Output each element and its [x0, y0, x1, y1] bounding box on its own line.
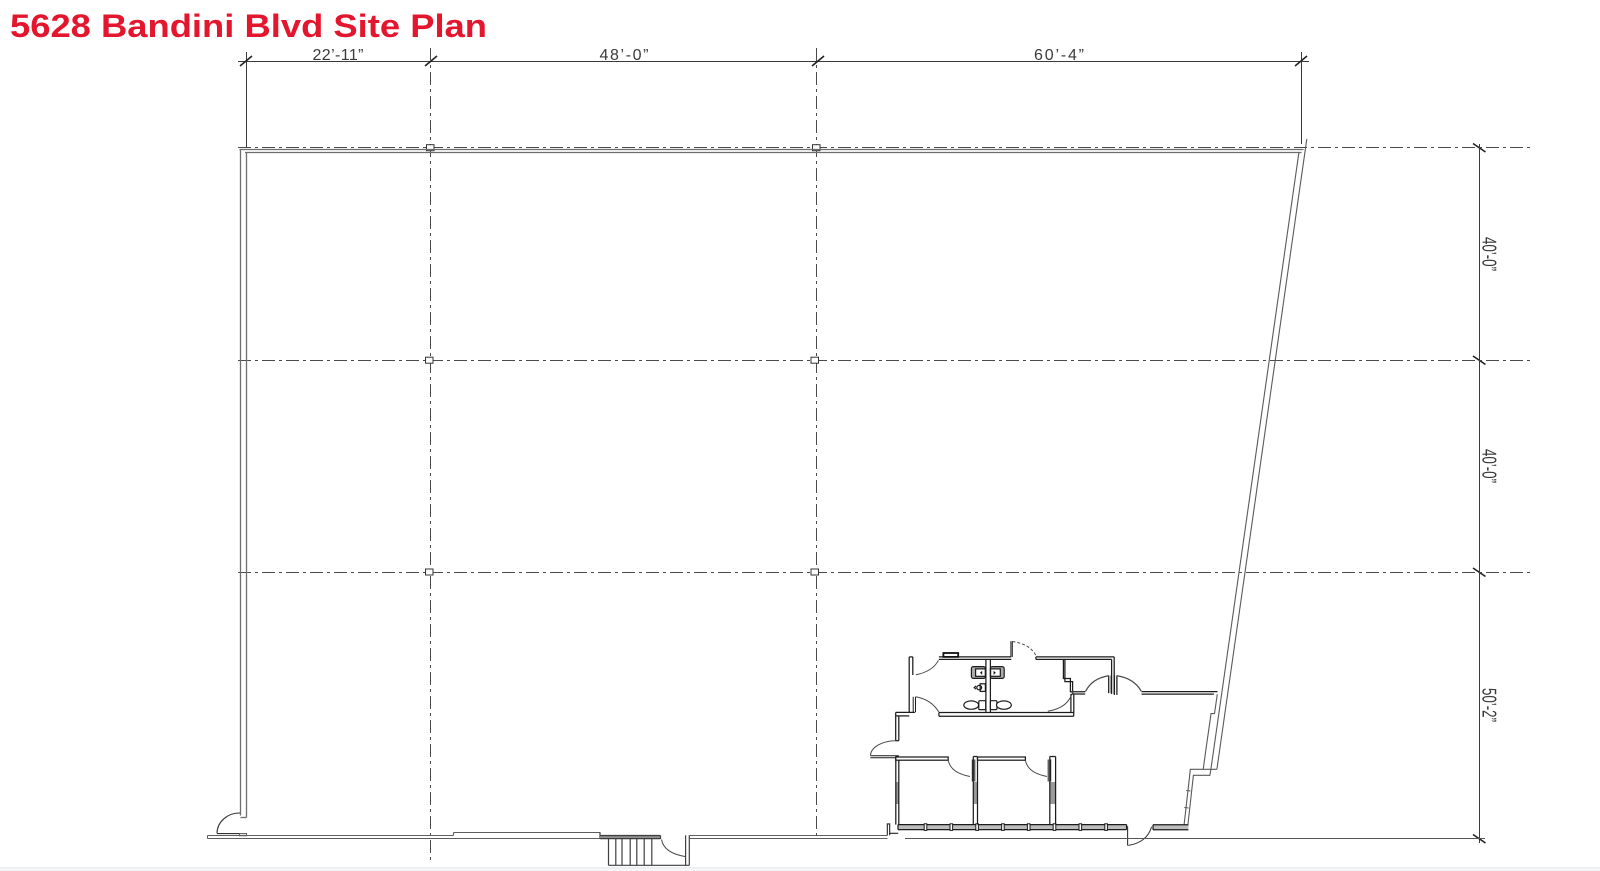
svg-text:5628 Bandini Blvd Site Plan: 5628 Bandini Blvd Site Plan	[10, 8, 487, 44]
svg-text:22’-11”: 22’-11”	[313, 47, 364, 64]
svg-text:40’-0”: 40’-0”	[1478, 237, 1500, 271]
svg-text:40’-0”: 40’-0”	[1478, 449, 1500, 483]
svg-text:48’-0”: 48’-0”	[600, 47, 649, 64]
svg-text:50’-2”: 50’-2”	[1478, 688, 1500, 722]
